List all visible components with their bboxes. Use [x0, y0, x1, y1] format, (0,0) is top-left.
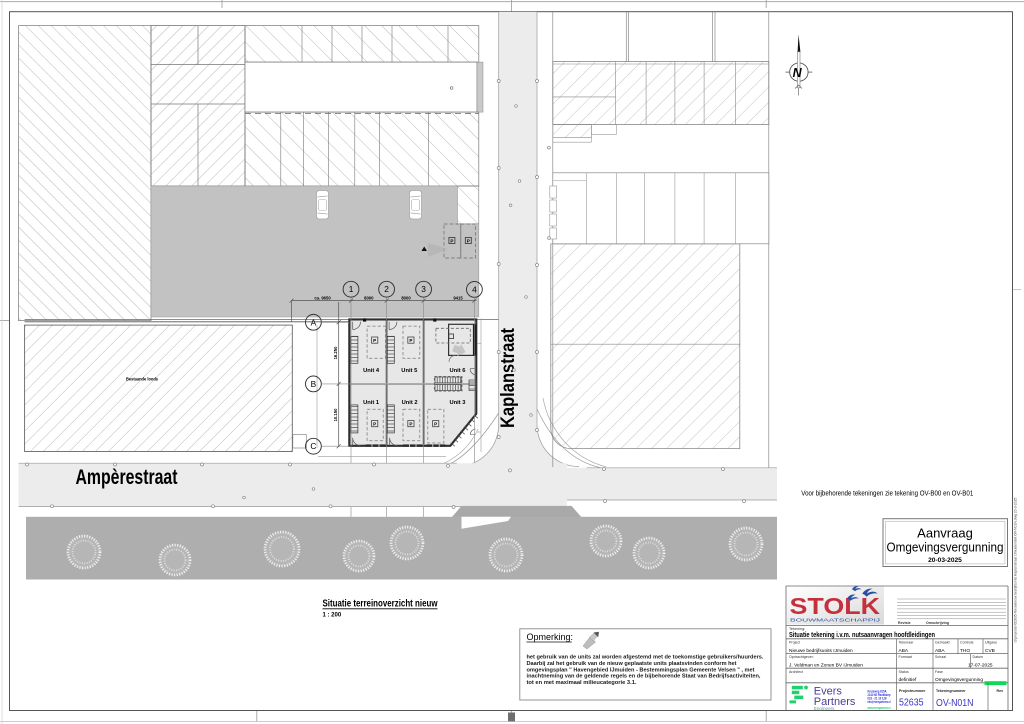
- svg-text:B: B: [311, 379, 317, 389]
- svg-text:het gebruik van de units zal w: het gebruik van de units zal worden afge…: [527, 655, 764, 661]
- svg-text:Rev: Rev: [997, 689, 1004, 693]
- svg-text:52635: 52635: [899, 697, 924, 708]
- svg-text:J. Veldman en Zonen BV IJmuide: J. Veldman en Zonen BV IJmuiden: [789, 663, 863, 669]
- svg-text:Unit 6: Unit 6: [450, 368, 467, 374]
- svg-text:Omgevingsvergunning: Omgevingsvergunning: [887, 540, 1004, 555]
- svg-text:N: N: [793, 66, 803, 80]
- svg-text:Uitgave: Uitgave: [985, 641, 997, 645]
- svg-text:4: 4: [472, 284, 477, 294]
- svg-text:STOLK: STOLK: [790, 593, 881, 619]
- svg-text:Architect: Architect: [789, 670, 803, 674]
- svg-text:Daarbij zal het gebruik van de: Daarbij zal het gebruik van de nieuw gep…: [527, 661, 737, 667]
- svg-text:Revisie: Revisie: [898, 621, 911, 625]
- svg-text:Gemaakt: Gemaakt: [935, 641, 950, 645]
- svg-text:definitief: definitief: [899, 677, 918, 683]
- svg-text:P: P: [409, 338, 412, 343]
- svg-text:Unit 5: Unit 5: [401, 368, 418, 374]
- svg-text:Fase: Fase: [935, 670, 943, 674]
- svg-text:Controle: Controle: [960, 641, 974, 645]
- svg-text:20-03-2025: 20-03-2025: [928, 557, 962, 564]
- svg-text:P: P: [434, 422, 437, 427]
- svg-text:Ampèrestraat: Ampèrestraat: [76, 465, 178, 489]
- svg-text:www.everspartners.nl: www.everspartners.nl: [867, 706, 891, 710]
- svg-text:Status: Status: [899, 670, 909, 674]
- svg-text:Voor bijbehorende tekeningen z: Voor bijbehorende tekeningen zie tekenin…: [801, 488, 973, 497]
- svg-text:tot en met maximaal milieucate: tot en met maximaal milieucategorie 3.1.: [527, 680, 637, 686]
- svg-text:Bestaande loods: Bestaande loods: [126, 377, 159, 382]
- svg-text:3: 3: [421, 284, 426, 294]
- svg-text:THO: THO: [960, 648, 970, 654]
- svg-text:10.150: 10.150: [333, 408, 338, 421]
- svg-text:P: P: [467, 238, 470, 243]
- svg-text:info@everspartners.nl: info@everspartners.nl: [868, 700, 891, 704]
- svg-text:Kaplanstraat: Kaplanstraat: [497, 328, 519, 428]
- svg-text:16.250: 16.250: [333, 346, 338, 359]
- svg-text:8000: 8000: [401, 295, 411, 300]
- svg-text:Unit 4: Unit 4: [363, 368, 380, 374]
- svg-text:OV-N01N: OV-N01N: [936, 698, 974, 709]
- svg-text:Unit 2: Unit 2: [402, 400, 418, 406]
- svg-text:9415: 9415: [453, 295, 463, 300]
- svg-text:C: C: [310, 441, 316, 451]
- svg-text:Datum: Datum: [973, 655, 984, 659]
- svg-text:omgevingsplan " Havengebied IJ: omgevingsplan " Havengebied IJmuiden - B…: [527, 667, 755, 673]
- svg-text:2: 2: [384, 284, 389, 294]
- svg-text:Aanvraag: Aanvraag: [917, 526, 973, 541]
- svg-text:ABA: ABA: [899, 648, 909, 654]
- svg-text:A: A: [311, 317, 317, 327]
- svg-text:1: 1: [349, 284, 354, 294]
- svg-text:Projectnummer: Projectnummer: [899, 689, 926, 693]
- svg-text:Project: Project: [789, 641, 800, 645]
- svg-text:d:\projecten\52635 Nieuwbouw b: d:\projecten\52635 Nieuwbouw bedrijfsuni…: [1014, 498, 1018, 643]
- svg-text:Tekenaar: Tekenaar: [899, 641, 915, 645]
- svg-text:Situatie terreinoverzicht nieu: Situatie terreinoverzicht nieuw: [323, 599, 438, 610]
- svg-text:8000: 8000: [364, 295, 374, 300]
- svg-text:Unit 3: Unit 3: [450, 400, 467, 406]
- svg-text:Omgevingsvergunning: Omgevingsvergunning: [935, 677, 983, 683]
- svg-text:Opdrachtgever:: Opdrachtgever:: [789, 655, 814, 659]
- svg-text:Schaal: Schaal: [935, 655, 946, 659]
- svg-text:Engineers: Engineers: [814, 706, 835, 711]
- svg-text:P: P: [409, 422, 412, 427]
- svg-text:inachtneming van de geldende r: inachtneming van de geldende regels en d…: [527, 674, 761, 680]
- svg-text:ABA: ABA: [935, 648, 945, 654]
- svg-text:BOUWMAATSCHAPPIJ: BOUWMAATSCHAPPIJ: [790, 617, 881, 623]
- svg-text:Unit 1: Unit 1: [363, 400, 380, 406]
- svg-text:Omschrijving: Omschrijving: [926, 621, 949, 625]
- svg-text:P: P: [373, 422, 376, 427]
- svg-text:CVB: CVB: [985, 648, 995, 654]
- svg-text:P: P: [373, 338, 376, 343]
- svg-text:Nieuwe bedrijfsunits IJmuiden: Nieuwe bedrijfsunits IJmuiden: [789, 648, 853, 654]
- svg-text:17-07-2025: 17-07-2025: [968, 663, 993, 669]
- svg-text:ca. 9650: ca. 9650: [314, 295, 331, 300]
- svg-text:Opmerking:: Opmerking:: [527, 632, 574, 642]
- svg-text:P: P: [450, 238, 453, 243]
- svg-text:1 : 200: 1 : 200: [323, 612, 342, 618]
- svg-text:Formaat: Formaat: [899, 655, 912, 659]
- svg-text:Tekeningnummer: Tekeningnummer: [936, 689, 966, 693]
- svg-text:Situatie tekening i.v.m. nuts: Situatie tekening i.v.m. nutsaanvragen h…: [789, 630, 935, 639]
